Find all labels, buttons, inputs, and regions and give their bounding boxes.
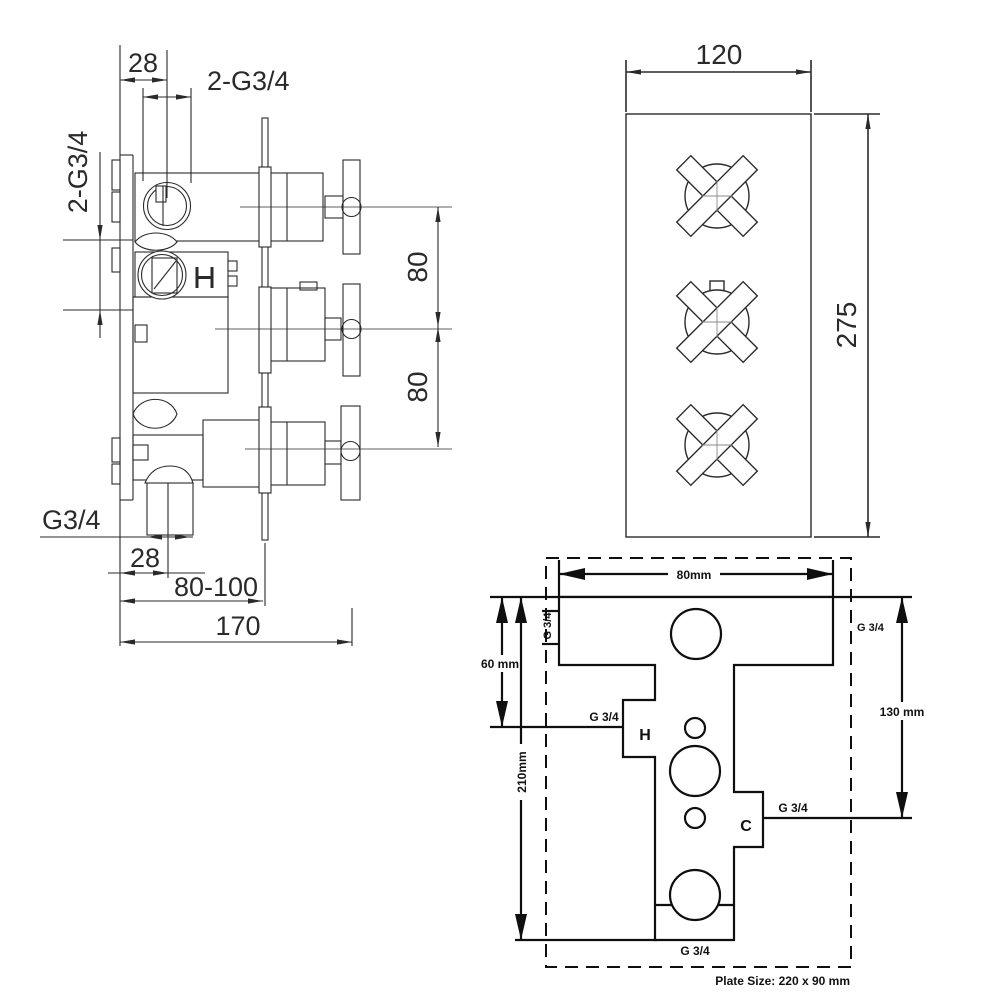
dim-80-upper-label: 80	[402, 251, 433, 282]
dim-2g34-left-label: 2-G3/4	[63, 131, 93, 214]
side-view-body	[112, 118, 452, 540]
front-view: 120 275	[626, 39, 880, 537]
side-view-dimensions: 28 2-G3/4 2-G3/4	[40, 45, 441, 646]
dim-120-label: 120	[696, 39, 743, 70]
dim-80-spacing: 80 80	[402, 207, 441, 447]
dim-60mm: 60 mm	[477, 597, 523, 727]
dim-28-top-label: 28	[128, 48, 158, 78]
g34-top-left: G 3/4	[542, 611, 558, 644]
dim-2g34-left: 2-G3/4	[63, 131, 133, 338]
bottom-port-circle	[670, 870, 720, 920]
g34-top-right-label: G 3/4	[857, 622, 885, 634]
cross-handle-top	[677, 156, 758, 237]
technical-drawing-sheet: 28 2-G3/4 2-G3/4	[0, 0, 1000, 1000]
g34-top-left-label: G 3/4	[542, 612, 554, 640]
side-view: 28 2-G3/4 2-G3/4	[40, 45, 452, 646]
dim-80-100-label: 80-100	[174, 572, 258, 602]
mid-valve-body	[133, 297, 228, 393]
pipe-bend-lower	[133, 399, 177, 428]
dim-210mm-label: 210mm	[515, 751, 529, 792]
dim-2g34-top-label: 2-G3/4	[207, 66, 290, 96]
inlet-port-mid	[138, 251, 186, 299]
pipe-bend-upper	[135, 233, 177, 250]
dim-210mm: 210mm	[515, 597, 535, 940]
lower-valve-body	[203, 420, 262, 487]
cold-marker: C	[740, 818, 752, 835]
handle-bottom	[325, 406, 360, 500]
mid-port-circle	[670, 746, 720, 796]
dim-120: 120	[626, 39, 811, 112]
top-port-circle	[671, 609, 721, 659]
dim-80mm-label: 80mm	[677, 568, 712, 582]
dim-60mm-label: 60 mm	[481, 657, 519, 671]
template-view: 80mm 60 mm 210mm 130 mm	[477, 558, 928, 988]
g34-hot-label: G 3/4	[589, 710, 619, 724]
outlet-pipe	[145, 466, 193, 535]
valve-technical-drawing: 28 2-G3/4 2-G3/4	[0, 0, 1000, 1000]
cross-handle-mid	[677, 281, 758, 362]
dim-28-bottom-label: 28	[130, 543, 160, 573]
dim-275: 275	[814, 114, 880, 537]
dim-170-label: 170	[215, 611, 260, 641]
dim-g34-outlet-label: G3/4	[42, 505, 101, 535]
g34-bottom-label: G 3/4	[680, 944, 710, 958]
hot-marker: H	[639, 727, 651, 744]
dim-275-label: 275	[831, 302, 862, 349]
lower-screw-hole	[685, 808, 705, 828]
plate-size-note: Plate Size: 220 x 90 mm	[715, 974, 850, 988]
wall-plate	[112, 155, 133, 500]
upper-screw-hole	[685, 718, 705, 738]
dim-80mm: 80mm	[559, 560, 833, 596]
cross-handle-bottom	[677, 405, 758, 486]
i-beam-symbol	[197, 267, 212, 288]
g34-cold-label: G 3/4	[778, 801, 808, 815]
dim-130mm-label: 130 mm	[880, 705, 925, 719]
dim-80-lower-label: 80	[402, 371, 433, 402]
